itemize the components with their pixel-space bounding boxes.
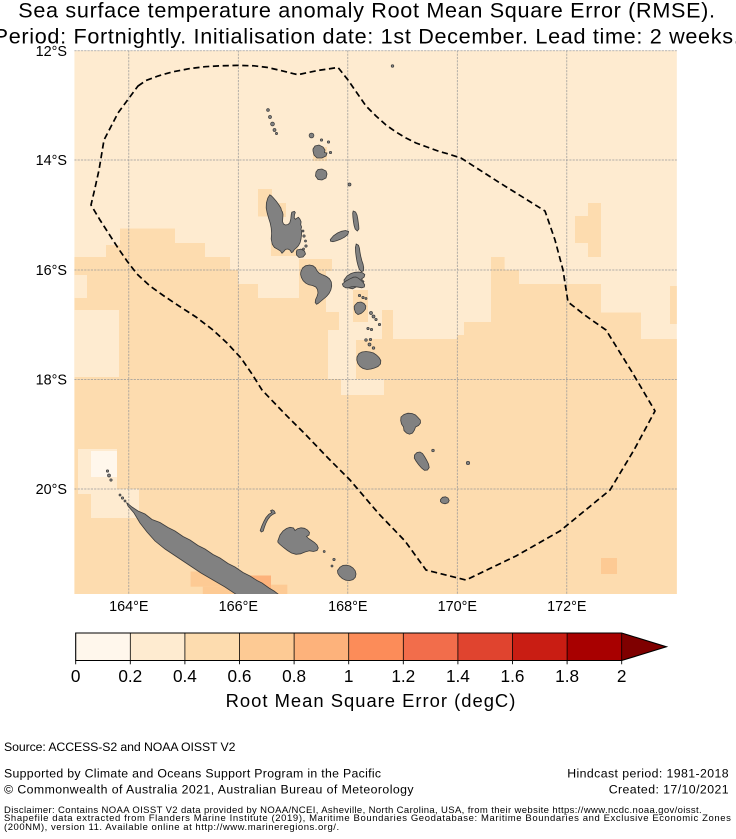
svg-text:1.4: 1.4: [446, 666, 470, 686]
svg-text:172°E: 172°E: [547, 599, 586, 615]
svg-text:18°S: 18°S: [36, 373, 67, 389]
svg-text:0.4: 0.4: [173, 666, 197, 686]
svg-text:170°E: 170°E: [438, 599, 477, 615]
svg-text:Source: ACCESS-S2 and NOAA OIS: Source: ACCESS-S2 and NOAA OISST V2: [4, 740, 236, 754]
svg-text:20°S: 20°S: [36, 482, 67, 498]
svg-text:16°S: 16°S: [36, 263, 67, 279]
svg-text:© Commonwealth of Australia 20: © Commonwealth of Australia 2021, Austra…: [4, 783, 414, 797]
svg-text:0.2: 0.2: [118, 666, 142, 686]
svg-text:0.8: 0.8: [282, 666, 306, 686]
svg-text:1.8: 1.8: [555, 666, 579, 686]
svg-text:2: 2: [617, 666, 627, 686]
svg-text:Hindcast period: 1981-2018: Hindcast period: 1981-2018: [567, 766, 729, 780]
svg-text:1: 1: [344, 666, 354, 686]
svg-text:0: 0: [71, 666, 81, 686]
svg-text:12°S: 12°S: [36, 44, 67, 60]
svg-text:(200NM), version 11. Available: (200NM), version 11. Available online at…: [4, 822, 340, 833]
svg-text:0.6: 0.6: [228, 666, 252, 686]
svg-text:Sea surface temperature anomal: Sea surface temperature anomaly Root Mea…: [18, 0, 715, 22]
svg-text:Root Mean Square Error (degC): Root Mean Square Error (degC): [226, 690, 517, 711]
svg-text:Supported by Climate and Ocean: Supported by Climate and Oceans Support …: [4, 766, 381, 780]
svg-text:168°E: 168°E: [328, 599, 367, 615]
svg-text:Period: Fortnightly. Initialis: Period: Fortnightly. Initialisation date…: [0, 24, 736, 49]
svg-text:166°E: 166°E: [219, 599, 258, 615]
svg-text:1.2: 1.2: [391, 666, 415, 686]
svg-text:164°E: 164°E: [109, 599, 148, 615]
svg-text:1.6: 1.6: [501, 666, 525, 686]
svg-text:Created: 17/10/2021: Created: 17/10/2021: [609, 783, 729, 797]
svg-text:14°S: 14°S: [36, 153, 67, 169]
